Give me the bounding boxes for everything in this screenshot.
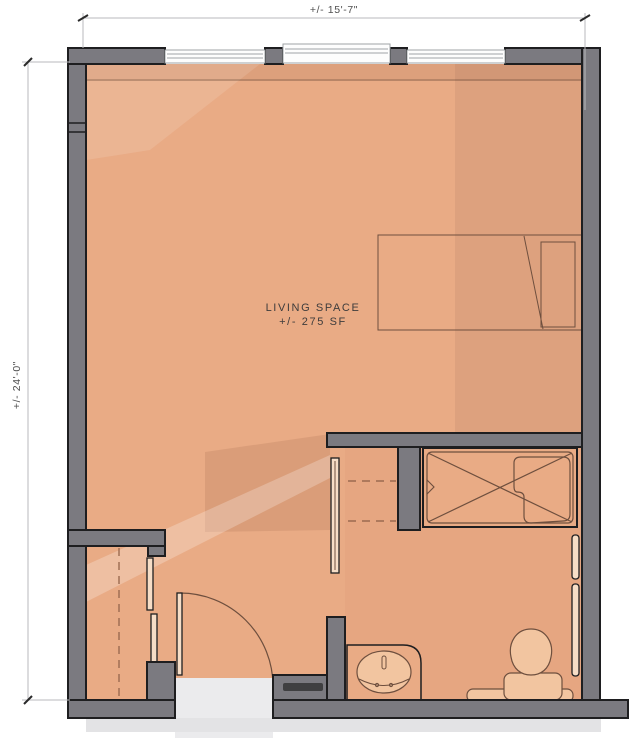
- wall-left: [68, 48, 86, 718]
- grab-bar-lower: [572, 584, 579, 676]
- unit-floor: [86, 64, 582, 700]
- closet-top-wall: [68, 530, 165, 546]
- wall-bottom-right: [273, 700, 628, 718]
- bathroom-wall-stub: [327, 617, 345, 700]
- window-mullion: [390, 48, 407, 64]
- wardrobe-sliding-door-upper: [147, 558, 153, 610]
- closet-jamb-step: [148, 546, 165, 556]
- dimension-top-label: +/- 15'-7": [310, 4, 358, 16]
- sink-vanity: [347, 645, 421, 700]
- closet-side-wall: [398, 447, 420, 530]
- window-mullion: [265, 48, 283, 64]
- toilet-bowl: [510, 629, 551, 675]
- grab-bar-upper: [572, 535, 579, 579]
- shower: [423, 448, 577, 527]
- entry-door-leaf: [177, 593, 182, 675]
- bathroom-wall: [327, 433, 582, 447]
- grab-bars: [572, 535, 579, 676]
- wall-right: [582, 48, 600, 718]
- wall-top-a: [68, 48, 165, 64]
- wardrobe-sliding-door-lower: [151, 614, 157, 662]
- floor-plan-page: +/- 15'-7" +/- 24'-0" LIVING SPACE +/- 2…: [0, 0, 640, 738]
- sink-basin: [357, 651, 411, 693]
- dimension-left-label: +/- 24'-0": [11, 361, 23, 409]
- toilet-tank: [504, 673, 562, 700]
- floor-plan-drawing: +/- 15'-7" +/- 24'-0" LIVING SPACE +/- 2…: [0, 0, 640, 738]
- room-area-label: +/- 275 SF: [279, 316, 347, 328]
- entry-left-jamb: [147, 662, 175, 700]
- windows: [165, 44, 505, 63]
- window-3: [407, 50, 505, 63]
- corridor-floor: [86, 718, 601, 732]
- bathroom-sliding-door: [331, 458, 339, 573]
- window-1: [165, 50, 265, 63]
- door-threshold: [283, 683, 323, 691]
- dimension-left: +/- 24'-0": [11, 58, 70, 704]
- room-label: LIVING SPACE: [266, 302, 361, 314]
- wall-bottom-left: [68, 700, 175, 718]
